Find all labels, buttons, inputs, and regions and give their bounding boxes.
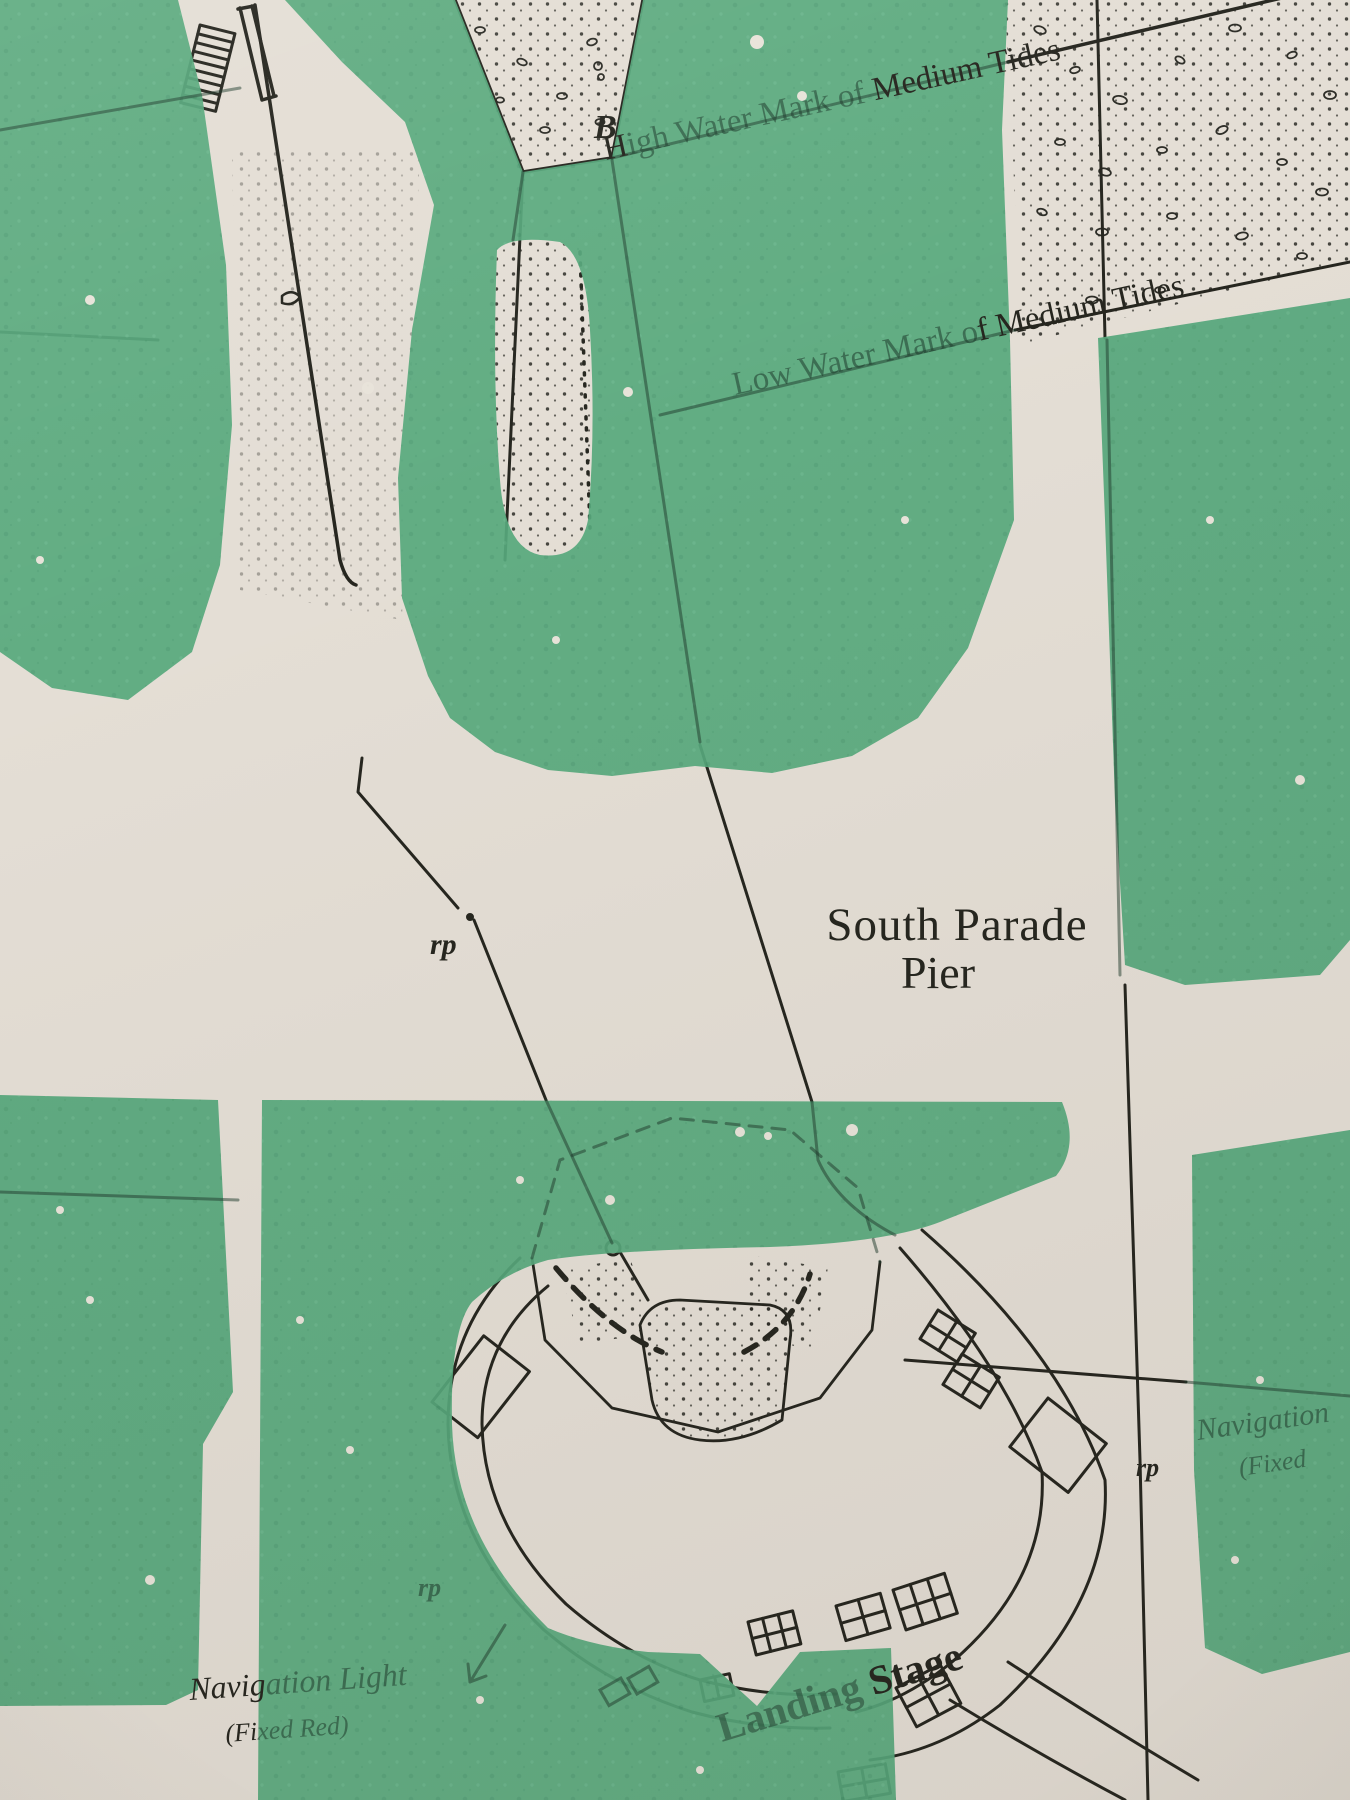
rp-label-left: rp <box>430 928 457 961</box>
green-letter-right-column <box>1098 298 1350 985</box>
green-letter-bottom-left <box>0 1095 233 1706</box>
pier-head-stipple <box>560 1255 828 1441</box>
map-photo: South Parade Pier B rp rp <box>0 0 1350 1800</box>
pier-name-line1: South Parade <box>826 899 1087 951</box>
rp-label-lower-ghost: rp <box>418 1573 441 1602</box>
rp-label-right: rp <box>1136 1453 1159 1482</box>
map-canvas: South Parade Pier B rp rp <box>0 0 1350 1800</box>
pier-head-bowl <box>640 1300 791 1441</box>
green-letter-top-left <box>0 0 232 700</box>
green-letter-bottom-center <box>258 1100 1070 1800</box>
pier-name-line2: Pier <box>901 947 975 998</box>
